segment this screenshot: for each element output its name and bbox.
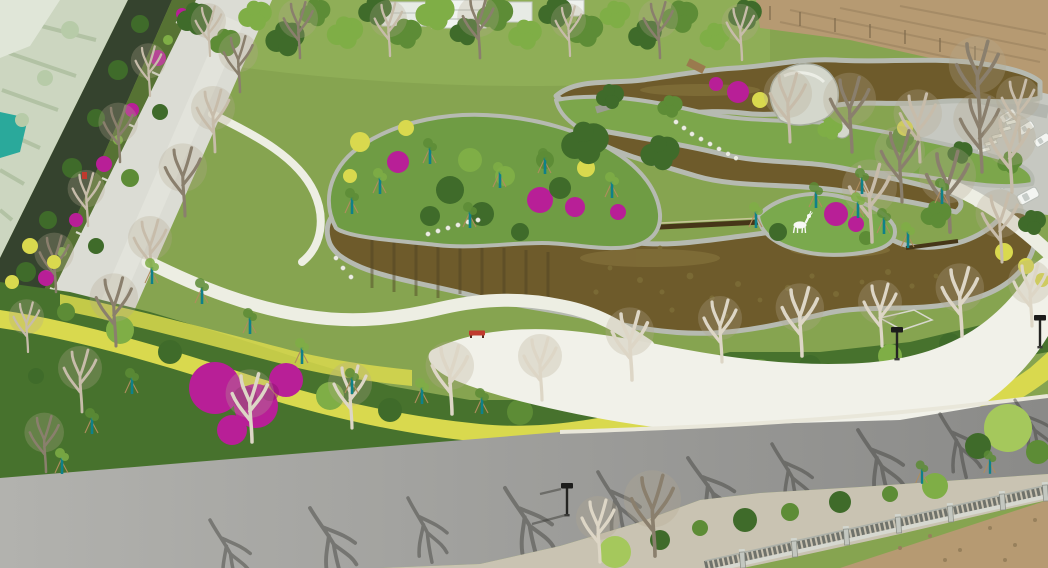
round-bush bbox=[984, 404, 1032, 452]
azalea-patch bbox=[824, 202, 848, 226]
aerial-park-photo: Aerial drone view of a newly landscaped … bbox=[0, 0, 1048, 568]
azalea-patch bbox=[387, 151, 409, 173]
azalea-patch bbox=[727, 81, 749, 103]
round-bush bbox=[599, 536, 631, 568]
park-scene-svg: Aerial drone view of a newly landscaped … bbox=[0, 0, 1048, 568]
fire-hydrant bbox=[82, 172, 87, 179]
